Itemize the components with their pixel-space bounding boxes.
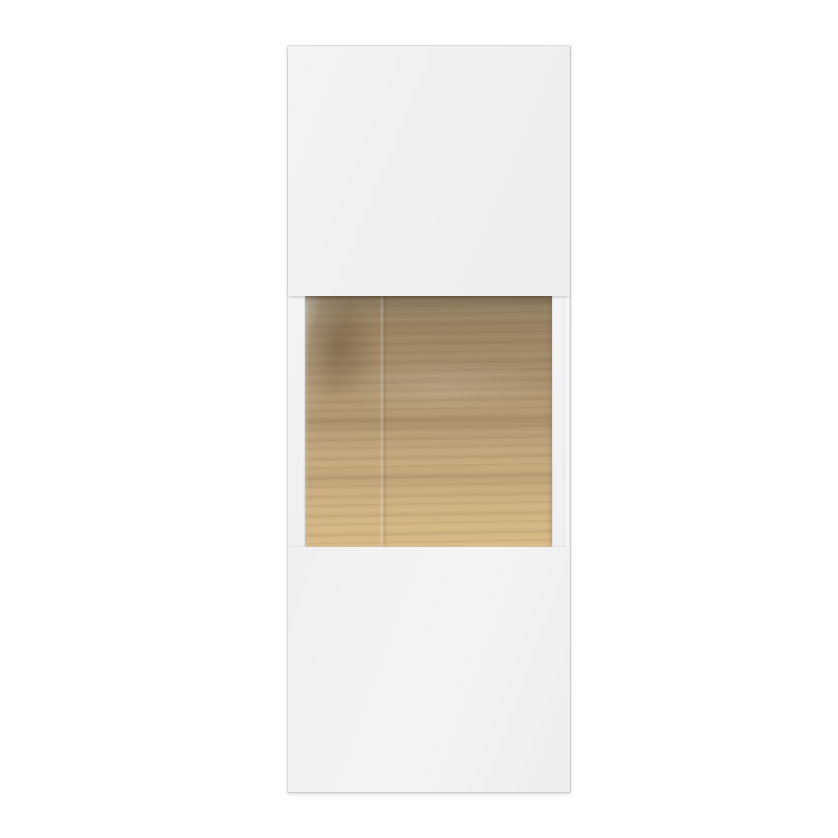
cabinet-glass-section [288, 296, 570, 547]
cabinet-bottom-door-panel [288, 547, 570, 792]
glass-reflection [305, 296, 552, 547]
cabinet-right-frame [552, 296, 570, 547]
cabinet-top-door-panel [288, 46, 570, 296]
oak-back-panel [305, 296, 552, 547]
product-photo-canvas [0, 0, 838, 838]
display-cabinet [287, 45, 571, 793]
cabinet-left-frame [288, 296, 305, 547]
